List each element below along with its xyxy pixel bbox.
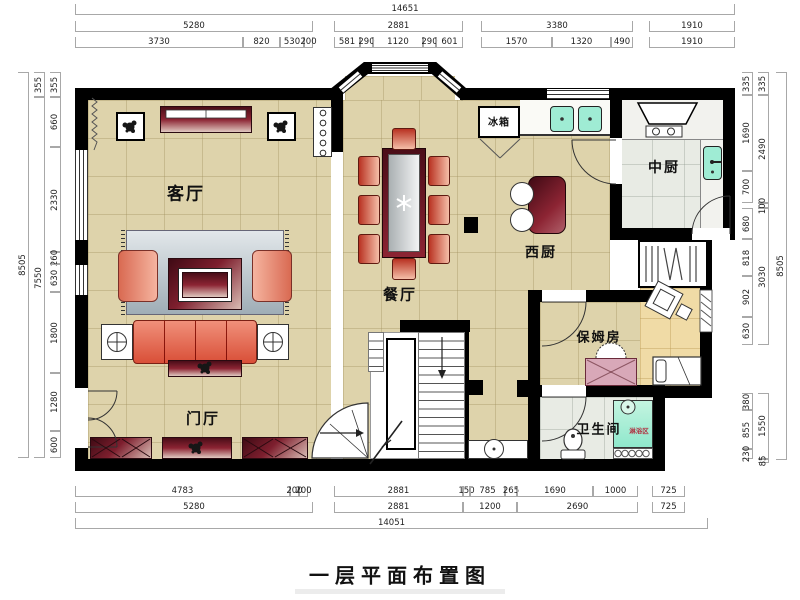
label-shower-zone: 淋浴区 (629, 425, 649, 435)
dim-right-details-4: 818 (742, 239, 753, 276)
dim-top-details-11: 490 (611, 37, 633, 48)
wall-bay-pillar (331, 88, 343, 152)
dim-right-details-7: 380 (742, 393, 753, 410)
art-frame-right (267, 112, 296, 141)
dining-chair-r3 (428, 234, 450, 264)
dim-left-overall-0: 8505 (18, 72, 29, 458)
dim-right-details-0: 335 (742, 72, 753, 95)
label-nanny: 保姆房 (576, 327, 621, 346)
dim-right-details-2: 700 (742, 171, 753, 203)
dim-bottom-groups-3: 2690 (517, 502, 638, 513)
sink-basin-2 (578, 106, 602, 132)
label-main-kitchen: 中厨 (648, 157, 680, 177)
dim-right-groups-4: 1550 (758, 393, 769, 459)
vanity (585, 358, 637, 386)
wall-right-kitchen (723, 88, 735, 240)
dim-right-groups-5: 85 (758, 459, 769, 463)
label-living: 客厅 (167, 180, 205, 205)
island-counter (528, 176, 566, 234)
wall-nanny-left (528, 290, 540, 460)
dim-left-details-0: 355 (50, 72, 61, 97)
dim-top-details-12: 1910 (649, 37, 735, 48)
tv-screen-inner (182, 272, 228, 298)
dim-bottom-details-2: 200 (299, 486, 308, 497)
dim-top-groups-3: 1910 (649, 21, 735, 32)
dim-right-details-5: 902 (742, 276, 753, 317)
mosaic-strip (613, 448, 653, 459)
side-table-left (101, 324, 133, 360)
dim-left-details-1: 660 (50, 97, 61, 147)
living-top-cabinet (160, 106, 252, 133)
dim-bottom-details-9: 725 (652, 486, 685, 497)
dim-bottom-groups-0: 5280 (75, 502, 313, 513)
dim-top-details-8: 601 (436, 37, 463, 48)
page-title: 一层平面布置图 (309, 560, 491, 589)
basin-counter (468, 440, 528, 459)
dim-bottom-details-6: 265 (505, 486, 517, 497)
art-frame-left (116, 112, 145, 141)
stair-void (386, 338, 416, 450)
dim-top-details-1: 820 (243, 37, 280, 48)
label-bathroom: 卫生间 (576, 419, 621, 438)
armchair-right (252, 250, 292, 302)
dim-right-details-6: 630 (742, 317, 753, 345)
label-dining: 餐厅 (383, 284, 417, 305)
dim-top-details-3: 200 (304, 37, 313, 48)
dim-bottom-details-7: 1690 (517, 486, 593, 497)
label-foyer: 门厅 (186, 408, 220, 429)
dim-top-details-4: 581 (334, 37, 360, 48)
dim-top-groups-1: 2881 (334, 21, 463, 32)
dining-chair-l2 (358, 195, 380, 225)
dining-chair-top (392, 128, 416, 150)
dim-bottom-overall-0: 14051 (75, 518, 708, 529)
dim-right-details-1: 1690 (742, 95, 753, 171)
dining-chair-l3 (358, 234, 380, 264)
stair-treads-side (368, 332, 384, 372)
dim-left-details-3: 260 (50, 252, 61, 264)
label-west-kitchen: 西厨 (525, 242, 557, 262)
dim-left-details-5: 1800 (50, 292, 61, 373)
sink-basin-1 (550, 106, 574, 132)
window-living-1 (75, 150, 88, 240)
dim-left-details-2: 2330 (50, 147, 61, 252)
stool-2 (510, 208, 534, 232)
dim-bottom-details-0: 4783 (75, 486, 290, 497)
dim-right-groups-0: 335 (758, 72, 769, 95)
kitchen-sink (703, 146, 722, 180)
dim-right-details-3: 680 (742, 208, 753, 239)
dim-right-groups-3: 3030 (758, 208, 769, 345)
dining-chair-r1 (428, 156, 450, 186)
dining-chair-r2 (428, 195, 450, 225)
sofa (133, 320, 257, 364)
wall-corridor-stub-right (517, 380, 540, 397)
foyer-console (162, 437, 232, 459)
floor-bed-nook (640, 288, 700, 386)
armchair-left (118, 250, 158, 302)
dim-top-details-7: 290 (423, 37, 436, 48)
dim-right-overall-0: 8505 (776, 72, 787, 460)
floor-bay (345, 76, 455, 102)
dim-top-details-6: 1120 (373, 37, 423, 48)
stair-treads-upper (418, 332, 465, 459)
dim-bottom-details-8: 1000 (593, 486, 638, 497)
dim-bottom-groups-1: 2881 (334, 502, 463, 513)
dim-left-details-7: 600 (50, 431, 61, 458)
dim-bottom-details-5: 785 (470, 486, 505, 497)
wall-stair-right (465, 320, 469, 459)
dim-right-details-8: 855 (742, 410, 753, 449)
dim-top-groups-2: 3380 (481, 21, 633, 32)
dim-top-overall-0: 14651 (75, 4, 735, 15)
window-above-sink (546, 88, 610, 100)
kitchen-door-opening (692, 228, 730, 240)
column-dining (464, 217, 478, 233)
floor-plan-page: 客厅 餐厅 门厅 西厨 中厨 保姆房 卫生间 冰箱 淋浴区 一层平面布置图 14… (0, 0, 800, 600)
label-fridge: 冰箱 (488, 114, 510, 129)
wall-top-left (75, 88, 337, 100)
dim-left-details-4: 630 (50, 264, 61, 292)
shoe-cabinet-right (242, 437, 308, 459)
dim-top-details-10: 1320 (552, 37, 611, 48)
dim-bottom-details-4: 150 (463, 486, 470, 497)
sofa-console (168, 360, 242, 377)
bath-door-opening (542, 385, 586, 397)
stool-1 (510, 182, 534, 206)
dim-right-groups-1: 2490 (758, 95, 769, 203)
dim-top-details-5: 290 (360, 37, 373, 48)
shoe-cabinet-left (90, 437, 152, 459)
wall-bath-right (653, 397, 665, 471)
window-living-2 (75, 265, 88, 295)
side-table-right (257, 324, 289, 360)
dim-right-details-9: 230 (742, 449, 753, 459)
dining-table-top (388, 154, 420, 252)
dim-top-details-0: 3730 (75, 37, 243, 48)
title-underline (295, 589, 505, 594)
nanny-door-opening (542, 290, 586, 302)
dim-left-groups-1: 7550 (34, 97, 45, 458)
dim-left-groups-0: 355 (34, 72, 45, 97)
dim-top-groups-0: 5280 (75, 21, 313, 32)
dim-left-details-6: 1280 (50, 373, 61, 431)
dim-bottom-details-3: 2881 (334, 486, 463, 497)
dim-bottom-groups-2: 1200 (463, 502, 517, 513)
entry-door-opening (75, 388, 88, 448)
wall-stair-top (400, 320, 470, 332)
dim-bottom-groups-4: 725 (652, 502, 685, 513)
wall-bottom (75, 459, 665, 471)
kitchen-counter-top (622, 100, 723, 140)
dim-top-details-9: 1570 (481, 37, 552, 48)
closet (638, 240, 708, 288)
dining-chair-bottom (392, 258, 416, 280)
cd-rack (313, 107, 332, 157)
dining-chair-l1 (358, 156, 380, 186)
kitchen-west-door-opening (610, 138, 622, 184)
